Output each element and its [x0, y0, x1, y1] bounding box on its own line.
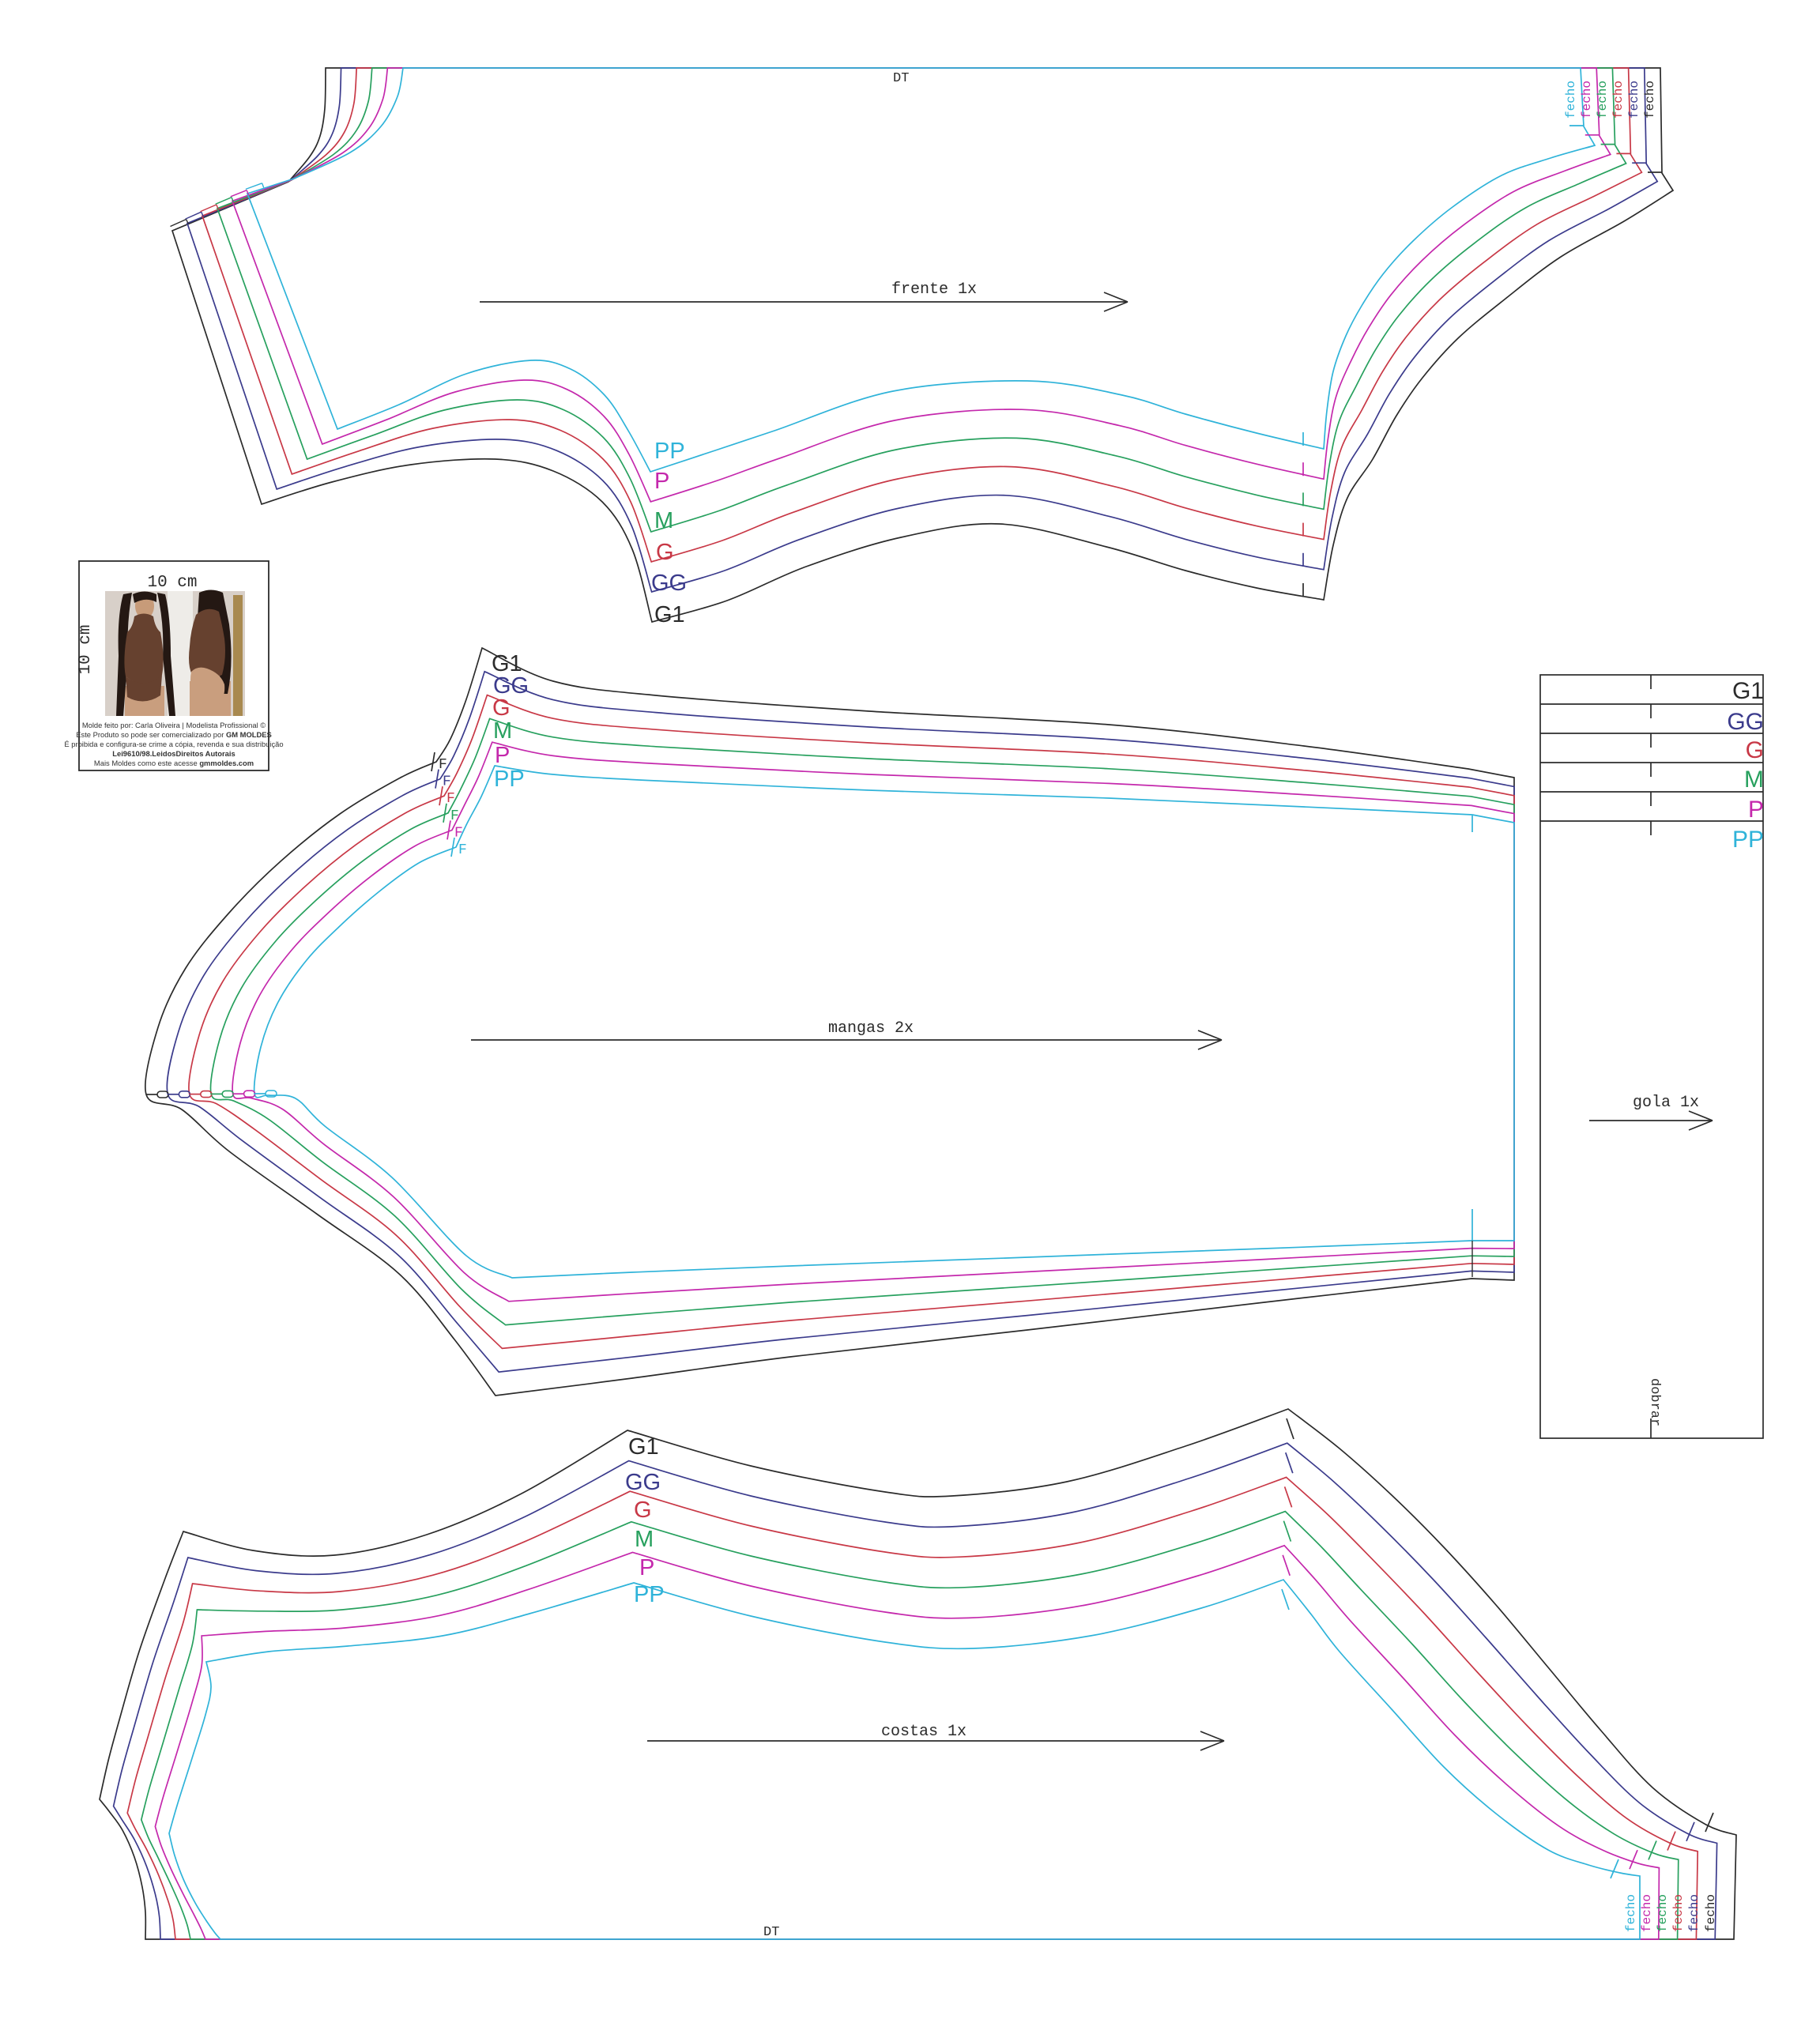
svg-text:GG: GG	[651, 571, 687, 596]
svg-text:É proibida e configura-se crim: É proibida e configura-se crime a cópia,…	[64, 740, 283, 748]
svg-text:mangas 2x: mangas 2x	[828, 1019, 914, 1038]
svg-text:GG: GG	[1727, 709, 1764, 735]
svg-text:fecho: fecho	[1643, 81, 1657, 119]
svg-text:G: G	[634, 1497, 652, 1523]
svg-text:M: M	[635, 1527, 654, 1552]
svg-text:G: G	[656, 540, 674, 565]
svg-text:PP: PP	[494, 767, 525, 792]
svg-text:Molde feito por: Carla Oliveir: Molde feito por: Carla Oliveira | Modeli…	[82, 721, 266, 729]
svg-text:costas 1x: costas 1x	[881, 1723, 967, 1741]
svg-text:F: F	[439, 757, 447, 773]
svg-text:F: F	[450, 808, 459, 824]
svg-text:G: G	[1746, 737, 1764, 763]
svg-text:Lei9610/98.LeidosDireitos Auto: Lei9610/98.LeidosDireitos Autorais	[112, 749, 235, 758]
svg-text:M: M	[493, 718, 512, 744]
svg-text:PP: PP	[654, 439, 685, 464]
svg-text:P: P	[495, 743, 510, 768]
svg-text:PP: PP	[1732, 827, 1764, 853]
svg-text:fecho: fecho	[1704, 1894, 1718, 1932]
svg-text:F: F	[458, 842, 467, 858]
svg-text:F: F	[447, 791, 455, 807]
svg-text:P: P	[639, 1555, 654, 1580]
svg-text:P: P	[1748, 797, 1764, 823]
svg-text:fecho: fecho	[1611, 81, 1626, 119]
svg-text:DT: DT	[893, 71, 909, 86]
svg-text:fecho: fecho	[1624, 1894, 1638, 1932]
svg-text:GG: GG	[625, 1470, 661, 1495]
svg-text:fecho: fecho	[1640, 1894, 1654, 1932]
svg-text:fecho: fecho	[1671, 1894, 1686, 1932]
svg-text:M: M	[1744, 767, 1764, 793]
svg-text:PP: PP	[634, 1582, 665, 1607]
svg-text:fecho: fecho	[1656, 1894, 1670, 1932]
svg-text:dobrar: dobrar	[1647, 1378, 1662, 1426]
svg-text:fecho: fecho	[1687, 1894, 1701, 1932]
svg-text:fecho: fecho	[1596, 81, 1610, 119]
svg-text:Este Produto so pode ser comer: Este Produto so pode ser comercializado …	[76, 730, 272, 739]
svg-text:10 cm: 10 cm	[77, 624, 95, 674]
svg-text:G1: G1	[1732, 678, 1764, 704]
svg-text:M: M	[654, 508, 673, 533]
svg-text:DT: DT	[763, 1925, 779, 1940]
svg-text:10 cm: 10 cm	[147, 574, 197, 592]
svg-text:fecho: fecho	[1627, 81, 1641, 119]
svg-text:fecho: fecho	[1580, 81, 1594, 119]
svg-text:G: G	[492, 695, 511, 721]
svg-text:F: F	[443, 774, 451, 790]
svg-text:fecho: fecho	[1564, 81, 1578, 119]
svg-text:gola 1x: gola 1x	[1633, 1094, 1699, 1112]
svg-text:G1: G1	[628, 1434, 659, 1460]
svg-text:G1: G1	[654, 602, 685, 627]
svg-text:Mais Moldes como este acesse g: Mais Moldes como este acesse gmmoldes.co…	[94, 759, 254, 767]
svg-text:F: F	[454, 825, 463, 841]
svg-text:P: P	[654, 469, 669, 494]
svg-text:frente 1x: frente 1x	[891, 281, 977, 299]
